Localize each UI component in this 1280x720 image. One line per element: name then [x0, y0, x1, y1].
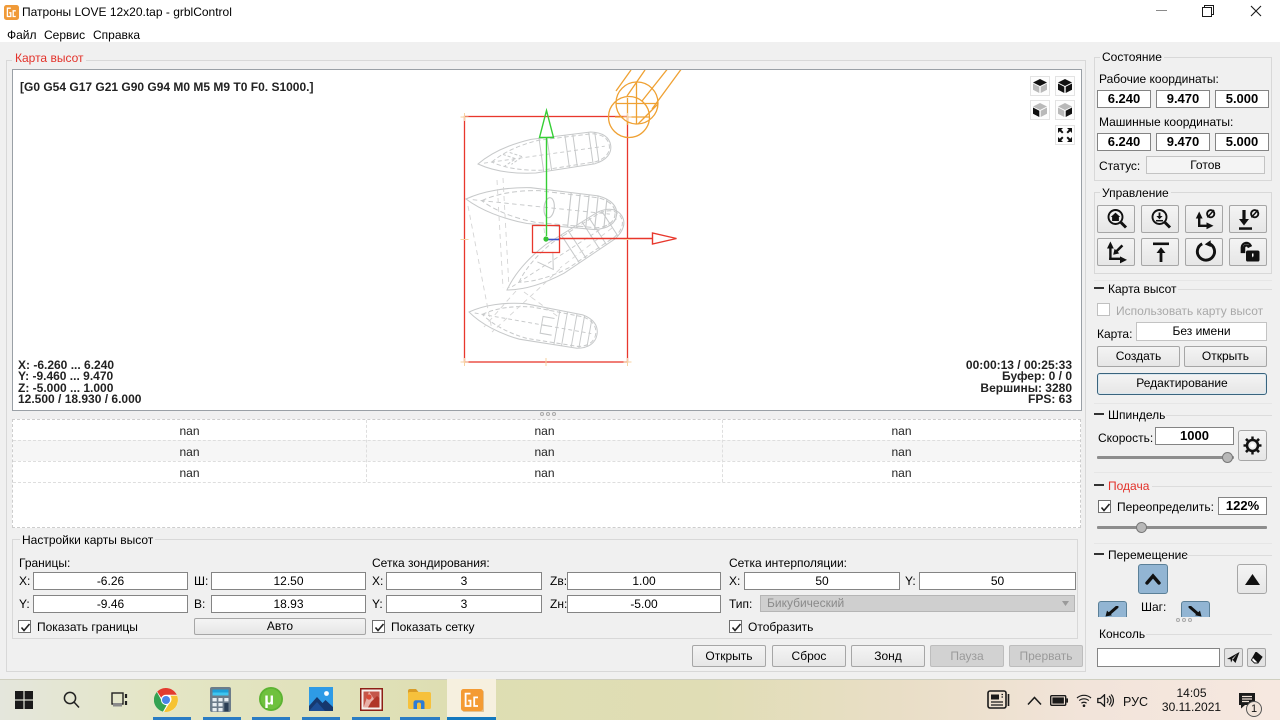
svg-text:µ: µ: [264, 690, 274, 709]
